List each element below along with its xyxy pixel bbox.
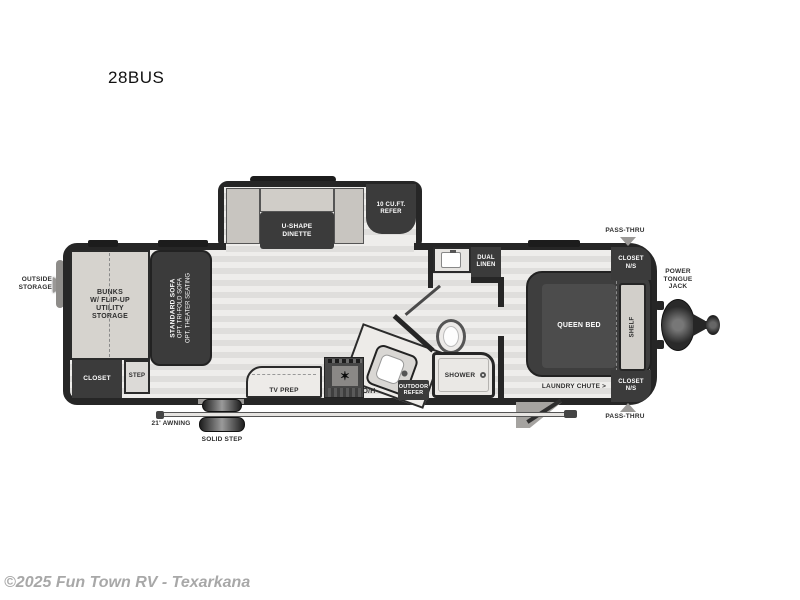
page-title: 28BUS xyxy=(108,68,198,88)
sofa: STANDARD SOFA OPT. TRI-FOLD SOFA OPT. TH… xyxy=(150,250,212,366)
outdoor-refer-label: OUTDOOR REFER xyxy=(399,384,429,397)
queen-bed-mattress: QUEEN BED xyxy=(542,284,616,368)
bed-fold-line xyxy=(616,281,617,371)
hitch-ball xyxy=(706,315,720,335)
closet-label: CLOSET xyxy=(83,375,111,383)
burner-icon: ✶ xyxy=(340,369,350,383)
shelf: SHELF xyxy=(619,283,646,371)
entry-step: STEP xyxy=(124,360,150,394)
copyright: ©2025 Fun Town RV - Texarkana xyxy=(4,574,250,592)
window-bunk xyxy=(88,240,118,247)
shower-label: SHOWER xyxy=(439,372,481,380)
bath-wall-right-lower xyxy=(498,336,504,398)
power-tongue-jack-label: POWER TONGUE JACK xyxy=(654,268,702,291)
toilet-bowl xyxy=(443,326,459,347)
sofa-label: STANDARD SOFA OPT. TRI-FOLD SOFA OPT. TH… xyxy=(169,273,192,343)
pass-thru-bottom-label: PASS-THRU xyxy=(598,413,652,421)
bunks-label: BUNKS W/ FLIP-UP UTILITY STORAGE xyxy=(90,289,130,322)
tv-prep-label: TV PREP xyxy=(246,387,322,395)
awning-cap-left xyxy=(156,411,164,419)
step-label: STEP xyxy=(129,373,145,380)
laundry-chute-label: LAUNDRY CHUTE > xyxy=(538,383,610,391)
bunk-fold-line xyxy=(109,253,110,357)
shower-drain-icon xyxy=(480,372,486,378)
window-bedroom xyxy=(528,240,580,247)
awning-cap-right xyxy=(564,410,577,418)
closet-ns-top: CLOSET N/S xyxy=(611,247,651,280)
dinette-bench-left xyxy=(226,188,260,244)
awning-bar xyxy=(160,412,570,417)
outdoor-refer: OUTDOOR REFER xyxy=(398,380,429,400)
stove-burner-panel: ✶ xyxy=(332,366,358,386)
closet-ns-bottom: CLOSET N/S xyxy=(611,370,651,402)
dinette-bench-back xyxy=(260,188,334,212)
solid-step-lower xyxy=(199,417,245,432)
solid-step-label: SOLID STEP xyxy=(194,436,250,444)
solid-step-upper xyxy=(202,399,242,412)
jack-mount-top xyxy=(656,301,664,310)
refer-label: 10 CU.FT. REFER xyxy=(377,202,406,216)
dinette-bench-right xyxy=(334,188,364,244)
pass-thru-top-arrow-icon xyxy=(620,237,636,246)
tongue-jack xyxy=(661,299,695,351)
vanity-sink xyxy=(441,252,461,268)
bath-wall-right-upper xyxy=(498,283,504,307)
closet: CLOSET xyxy=(72,360,122,398)
vanity-faucet-icon xyxy=(450,250,456,253)
stove-knobs xyxy=(328,359,362,363)
closet-ns-top-label: CLOSET N/S xyxy=(618,256,644,270)
faucet-icon xyxy=(401,370,409,378)
dinette-table: U-SHAPE DINETTE xyxy=(260,212,334,249)
dual-linen-label: DUAL LINEN xyxy=(477,255,496,269)
awning-label: 21' AWNING xyxy=(144,420,198,428)
pass-thru-bottom-arrow-icon xyxy=(620,403,636,412)
shower: SHOWER xyxy=(432,352,495,398)
outside-storage-label: OUTSIDE STORAGE xyxy=(6,276,52,291)
tv-prep-dash xyxy=(252,374,316,375)
floorplan-page: 28BUS OUTSIDE STORAGE U-SHAPE DINETTE 10… xyxy=(0,0,800,600)
shelf-label: SHELF xyxy=(629,317,637,338)
window-sofa xyxy=(158,240,208,247)
jack-mount-bottom xyxy=(656,340,664,349)
refrigerator: 10 CU.FT. REFER xyxy=(366,184,416,234)
pass-thru-top-label: PASS-THRU xyxy=(598,227,652,235)
bathroom-vanity xyxy=(433,247,471,273)
bunks-room: BUNKS W/ FLIP-UP UTILITY STORAGE xyxy=(70,250,150,360)
toilet xyxy=(436,319,466,354)
dual-linen-cabinet: DUAL LINEN xyxy=(471,247,501,277)
closet-ns-bottom-label: CLOSET N/S xyxy=(618,379,644,393)
queen-bed-label: QUEEN BED xyxy=(557,322,600,330)
dinette-label: U-SHAPE DINETTE xyxy=(282,223,313,238)
oh-label-kitchen: O/H xyxy=(356,388,382,396)
